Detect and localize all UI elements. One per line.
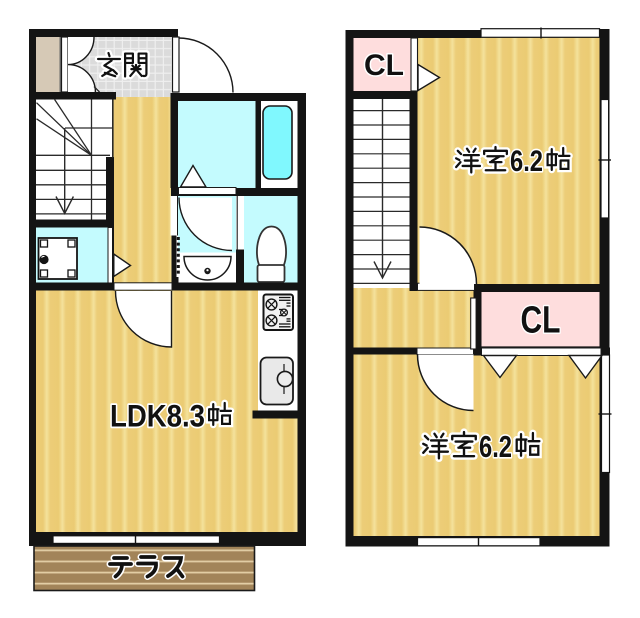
svg-text:6.2: 6.2 bbox=[510, 145, 543, 178]
svg-text:CL: CL bbox=[521, 300, 561, 342]
svg-text:6.2: 6.2 bbox=[479, 429, 512, 464]
svg-text:CL: CL bbox=[364, 49, 404, 82]
svg-text:LDK8.3: LDK8.3 bbox=[110, 398, 205, 434]
